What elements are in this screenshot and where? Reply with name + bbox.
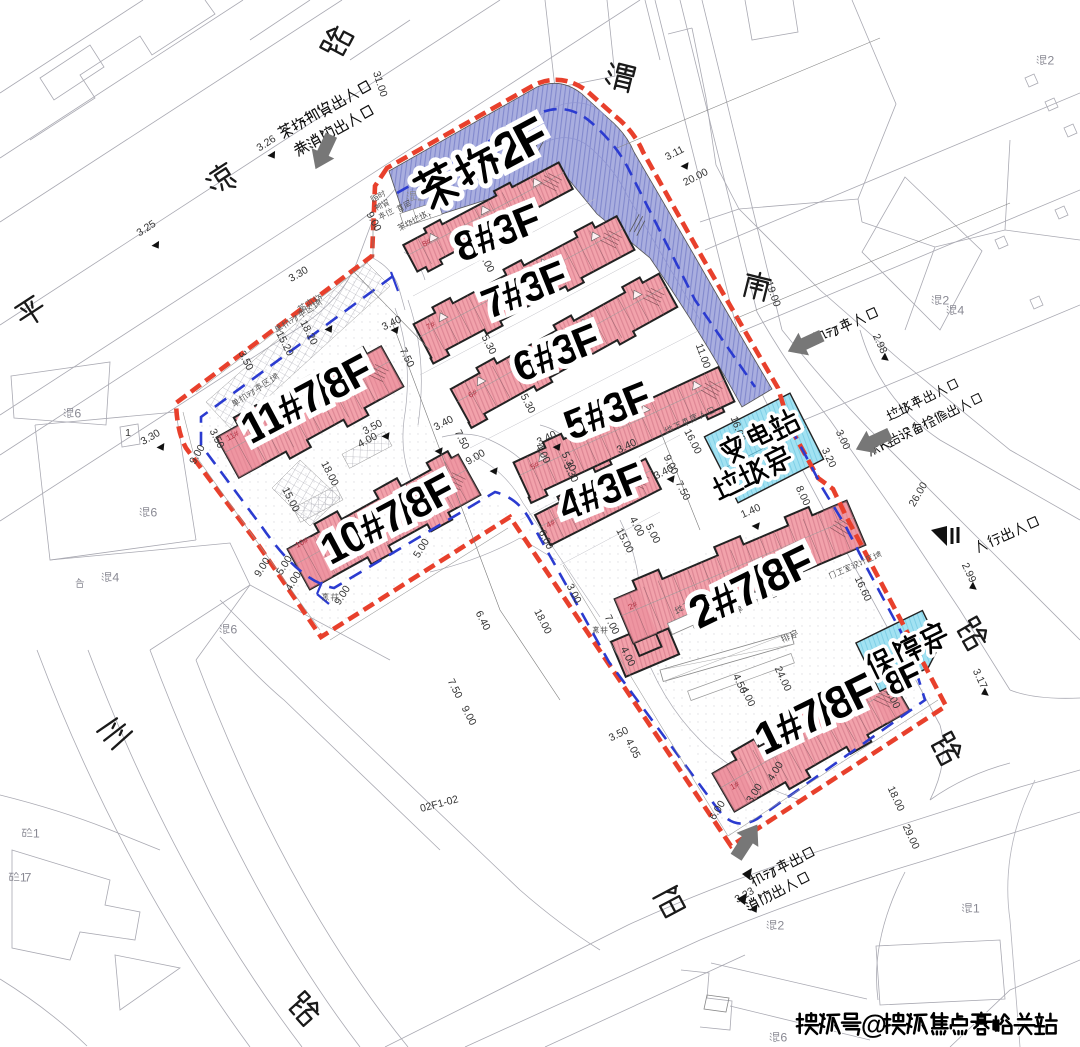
svg-text:6: 6 <box>230 623 237 637</box>
svg-text:2: 2 <box>942 294 949 308</box>
svg-text:1: 1 <box>125 427 131 439</box>
svg-text:1: 1 <box>973 902 980 916</box>
svg-text:6: 6 <box>74 407 81 421</box>
svg-text:@: @ <box>861 1010 887 1040</box>
svg-text:1: 1 <box>33 827 40 841</box>
svg-text:2: 2 <box>777 919 784 933</box>
svg-text:6: 6 <box>780 1031 787 1045</box>
svg-text:4: 4 <box>112 571 119 585</box>
svg-text:4: 4 <box>957 304 964 318</box>
svg-text:6: 6 <box>150 506 157 520</box>
svg-text:2: 2 <box>1047 54 1054 68</box>
svg-text:17: 17 <box>20 871 32 885</box>
